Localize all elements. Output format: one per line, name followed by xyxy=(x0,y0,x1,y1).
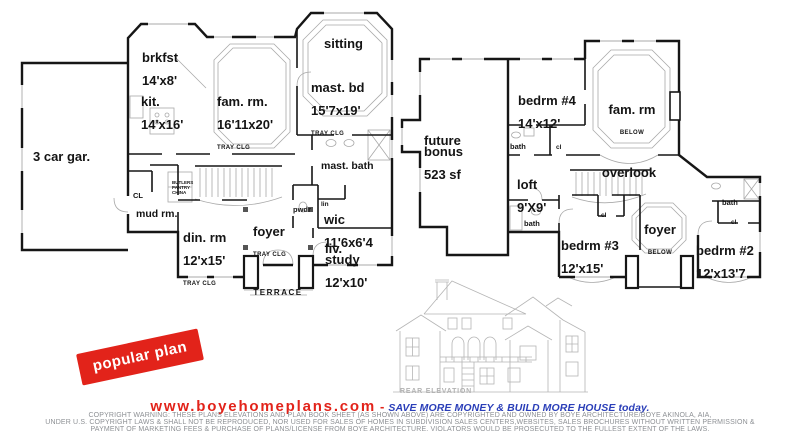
room-label-bedrm2: bedrm #2 12'x13'7 xyxy=(696,233,754,291)
room-label-fam-rm: fam. rm. 16'11x20' TRAY CLG xyxy=(217,84,273,166)
room-label-terrace: TERRACE xyxy=(253,275,302,310)
copyright-line: COPYRIGHT WARNING: THESE PLANS ELEVATION… xyxy=(0,412,800,419)
copyright-line: PAYMENT OF MARKETING FEES & PURCHASE OF … xyxy=(0,426,800,433)
room-label-pwdr: pwdr xyxy=(293,192,311,227)
room-label-din-rm: din. rm 12'x15' TRAY CLG xyxy=(183,220,226,302)
copyright-block: COPYRIGHT WARNING: THESE PLANS ELEVATION… xyxy=(0,412,800,434)
room-label-bedrm4: bedrm #4 14'x12' xyxy=(518,83,576,141)
room-label-fam-rm-below: fam. rm BELOW xyxy=(609,92,656,151)
room-label-garage: 3 car gar. xyxy=(33,139,90,174)
rear-elevation-caption: REAR ELEVATION xyxy=(400,388,472,395)
room-label-cl: CL xyxy=(133,178,143,213)
room-label-future-bonus: future bonus 523 sf xyxy=(424,123,463,192)
room-label-mast-bath: mast. bath xyxy=(321,149,374,184)
room-label-foyer: foyer TRAY CLG xyxy=(253,214,286,273)
room-label-sitting: sitting xyxy=(324,26,363,61)
room-label-foyer-below: foyer BELOW xyxy=(644,212,676,271)
room-label-cl-bedrm3: cl xyxy=(601,198,606,233)
room-label-cl-upper: cl xyxy=(556,130,561,165)
room-label-butlers-pantry: BUTLERS PANTRY CHINA xyxy=(172,176,193,201)
copyright-line: UNDER U.S. COPYRIGHT LAWS & SHALL NOT BE… xyxy=(0,419,800,426)
plan-sheet: 3 car gar. brkfst 14'x8' kit. 14'x16' fa… xyxy=(0,0,800,439)
room-label-bath-upper: bath xyxy=(510,129,526,164)
room-label-mast-bd: mast. bd 15'7x19' TRAY CLG xyxy=(311,70,364,152)
room-label-liv-study: liv. study 12'x10' xyxy=(325,231,367,300)
room-label-overlook: overlook xyxy=(602,155,656,190)
room-label-bath-left: bath xyxy=(524,206,540,241)
room-label-bedrm3: bedrm #3 12'x15' xyxy=(561,228,619,286)
rear-elevation-drawing xyxy=(393,280,588,392)
room-label-kit: kit. 14'x16' xyxy=(141,84,183,142)
